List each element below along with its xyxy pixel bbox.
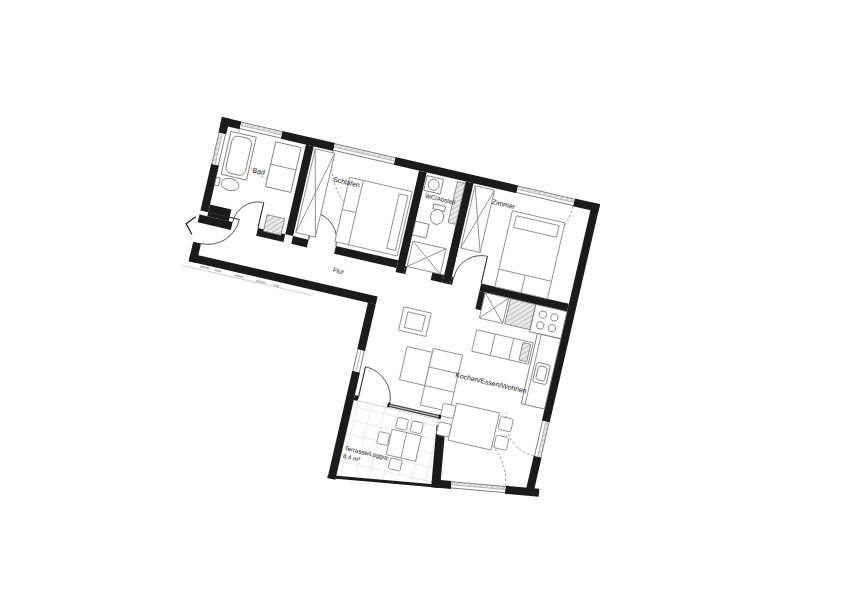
entrance-arrow-icon — [184, 215, 196, 234]
schlafen-bed — [335, 177, 412, 256]
wc-toilet — [429, 204, 446, 226]
zimmer-bed — [495, 211, 565, 299]
bad-label: Bad — [252, 166, 266, 176]
dining-set — [435, 400, 514, 453]
kitchen-tall-unit — [479, 293, 508, 324]
floor-plan: Bad Schlafen WC/Abstell Zimmer Flur Koch… — [130, 108, 617, 540]
window-left-lower — [352, 349, 365, 372]
floor-plan-page: Bad Schlafen WC/Abstell Zimmer Flur Koch… — [0, 0, 841, 595]
zimmer-door — [454, 250, 488, 284]
shaft-hatch — [263, 215, 284, 236]
wc-cabinet — [412, 221, 429, 238]
terrace-door — [358, 367, 396, 405]
kitchen-island — [472, 330, 533, 364]
bad-door — [233, 197, 264, 228]
shower-unit — [265, 142, 301, 193]
zimmer-label: Zimmer — [491, 198, 516, 210]
flur-label: Flur — [332, 266, 345, 276]
living-bottom-window — [451, 481, 505, 494]
kochen-essen-wohnen-label: Kochen/Essen/Wohnen — [455, 371, 528, 394]
floor-plan-svg: Bad Schlafen WC/Abstell Zimmer Flur Koch… — [130, 108, 617, 540]
wc-storage-box — [407, 241, 446, 274]
armchair — [399, 307, 432, 337]
schlafen-label: Schlafen — [332, 176, 360, 189]
